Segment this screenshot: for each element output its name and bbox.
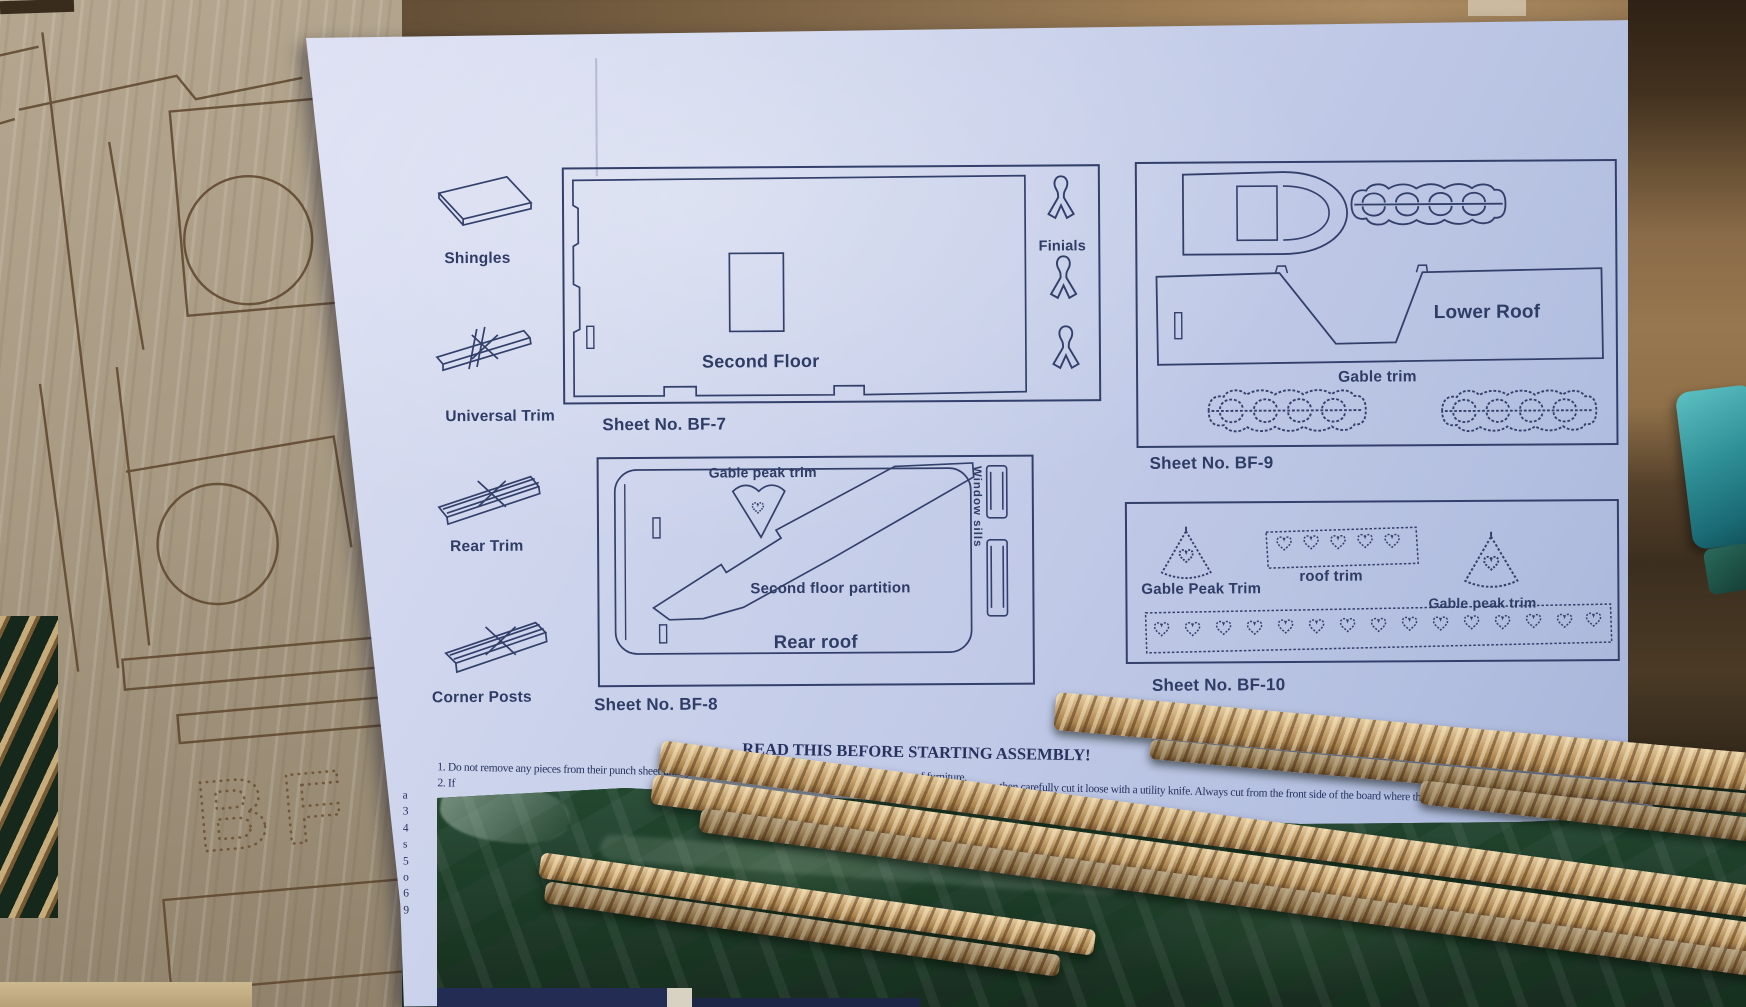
sheet-bf9-diagram — [1136, 160, 1618, 447]
bf9-caption: Sheet No. BF-9 — [1150, 453, 1274, 474]
teal-plastic-object-small — [1703, 543, 1746, 596]
board-punched-letters: BF — [192, 748, 362, 874]
legend-label-universal-trim: Universal Trim — [445, 408, 555, 427]
trim-sticks-corner — [0, 616, 58, 918]
board-bottom-wood — [0, 982, 252, 1007]
bf8-window-sills-label: Window sills — [971, 466, 983, 548]
bf9-lower-roof-label: Lower Roof — [1434, 301, 1541, 324]
bf8-gable-peak-trim-label: Gable peak trim — [709, 464, 817, 481]
bf10-caption: Sheet No. BF-10 — [1152, 675, 1285, 696]
teal-plastic-object — [1675, 384, 1746, 550]
legend-label-corner-posts: Corner Posts — [432, 689, 532, 708]
bf10-gable-peak-trim-right-label: Gable peak trim — [1428, 595, 1536, 612]
rear-trim-icon — [439, 477, 540, 525]
shingles-icon — [439, 177, 531, 226]
bf8-caption: Sheet No. BF-8 — [594, 695, 718, 716]
bf8-second-floor-partition-label: Second floor partition — [750, 579, 910, 597]
bottom-navy-strip-right — [692, 998, 920, 1007]
bf7-finials-label: Finials — [1027, 238, 1097, 254]
universal-trim-icon — [437, 327, 531, 371]
corner-posts-icon — [446, 623, 547, 673]
legend-label-shingles: Shingles — [444, 250, 510, 268]
bf7-second-floor-label: Second Floor — [702, 351, 820, 373]
photo-scene: BF — [0, 0, 1746, 1007]
legend-label-rear-trim: Rear Trim — [450, 538, 523, 556]
bottom-light-gap — [667, 988, 692, 1007]
bf10-roof-trim-label: roof trim — [1299, 568, 1363, 585]
bf10-gable-peak-trim-left-label: Gable Peak Trim — [1141, 580, 1261, 598]
bottom-navy-strip-left — [437, 988, 667, 1007]
bf9-gable-trim-label: Gable trim — [1338, 368, 1417, 386]
sheet-bf7-diagram — [563, 165, 1100, 403]
background-wood-sliver — [1468, 0, 1526, 16]
instructions-margin-characters: a 3 4 s 5 o 6 9 — [403, 789, 410, 920]
background-wood-right — [1628, 0, 1746, 782]
bf7-caption: Sheet No. BF-7 — [602, 414, 726, 435]
instructions-line2-start: 2. If — [437, 777, 455, 789]
bf8-rear-roof-label: Rear roof — [774, 631, 858, 654]
